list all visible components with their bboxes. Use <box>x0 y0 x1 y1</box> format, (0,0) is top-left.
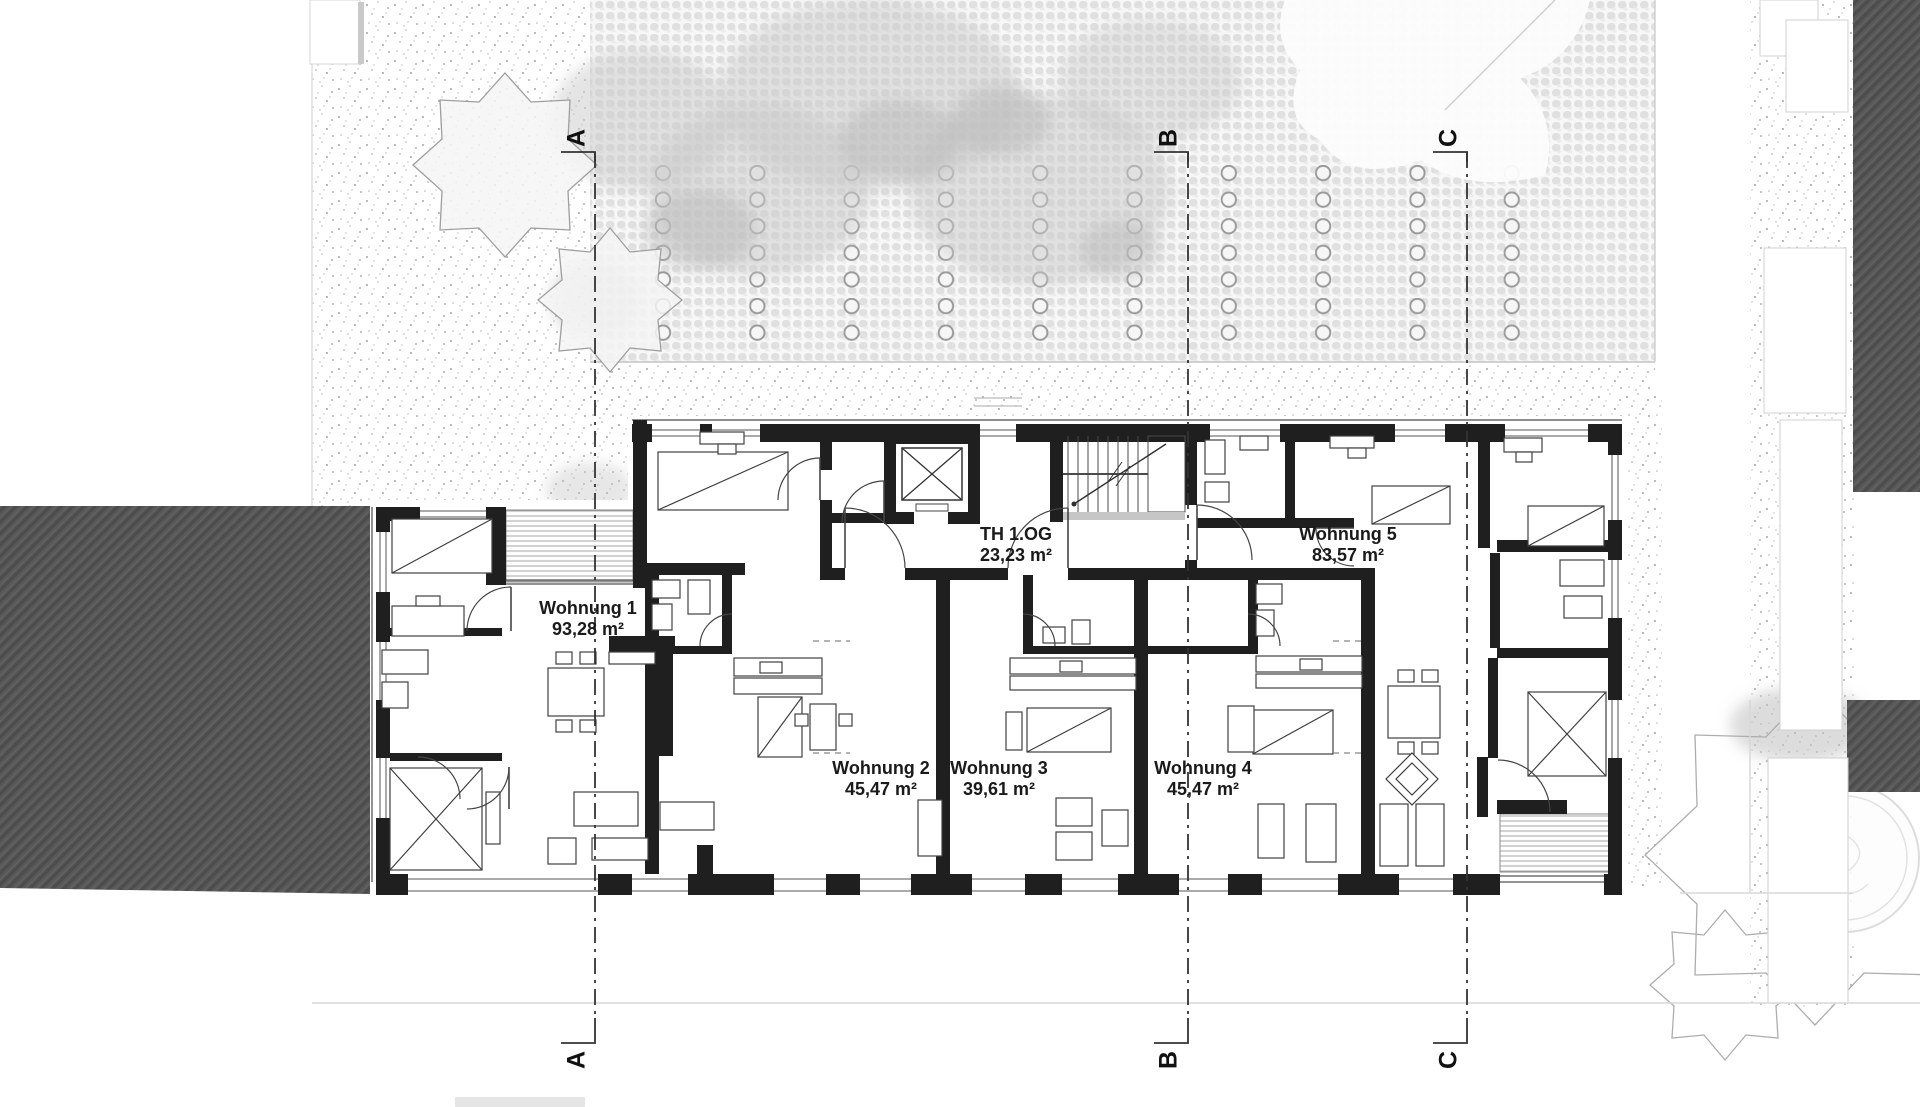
apartment-name: Wohnung 3 <box>950 758 1048 779</box>
apartment-name: Wohnung 2 <box>832 758 930 779</box>
apartment-area: 45,47 m² <box>832 779 930 800</box>
section-marker-c-top: C <box>1435 129 1464 147</box>
apartment-area: 45,47 m² <box>1154 779 1252 800</box>
apartment-label-wohnung-3: Wohnung 3 39,61 m² <box>950 758 1048 800</box>
facade-south <box>376 874 1622 895</box>
stairwell-area: 23,23 m² <box>980 545 1052 566</box>
neighbor-structure-topleft <box>310 0 364 64</box>
apartment-label-wohnung-2: Wohnung 2 45,47 m² <box>832 758 930 800</box>
apartment-label-wohnung-1: Wohnung 1 93,28 m² <box>539 598 637 640</box>
section-marker-a-top: A <box>563 129 592 147</box>
stairwell-name: TH 1.OG <box>980 524 1052 545</box>
section-marker-b-bottom: B <box>1155 1051 1184 1069</box>
apartment-name: Wohnung 1 <box>539 598 637 619</box>
section-marker-a-bottom: A <box>563 1051 592 1069</box>
floor-plan-sheet: Wohnung 1 93,28 m² Wohnung 2 45,47 m² Wo… <box>0 0 1920 1107</box>
apartment-name: Wohnung 5 <box>1299 524 1397 545</box>
apartment-area: 83,57 m² <box>1299 545 1397 566</box>
section-marker-c-bottom: C <box>1435 1051 1464 1069</box>
apartment-label-wohnung-4: Wohnung 4 45,47 m² <box>1154 758 1252 800</box>
scale-bar-sliver <box>455 1097 585 1107</box>
stairwell-label: TH 1.OG 23,23 m² <box>980 524 1052 566</box>
apartment-area: 93,28 m² <box>539 619 637 640</box>
section-marker-b-top: B <box>1155 129 1184 147</box>
apartment-area: 39,61 m² <box>950 779 1048 800</box>
site-plan-drawing <box>0 0 1920 1107</box>
apartment-label-wohnung-5: Wohnung 5 83,57 m² <box>1299 524 1397 566</box>
apartment-name: Wohnung 4 <box>1154 758 1252 779</box>
